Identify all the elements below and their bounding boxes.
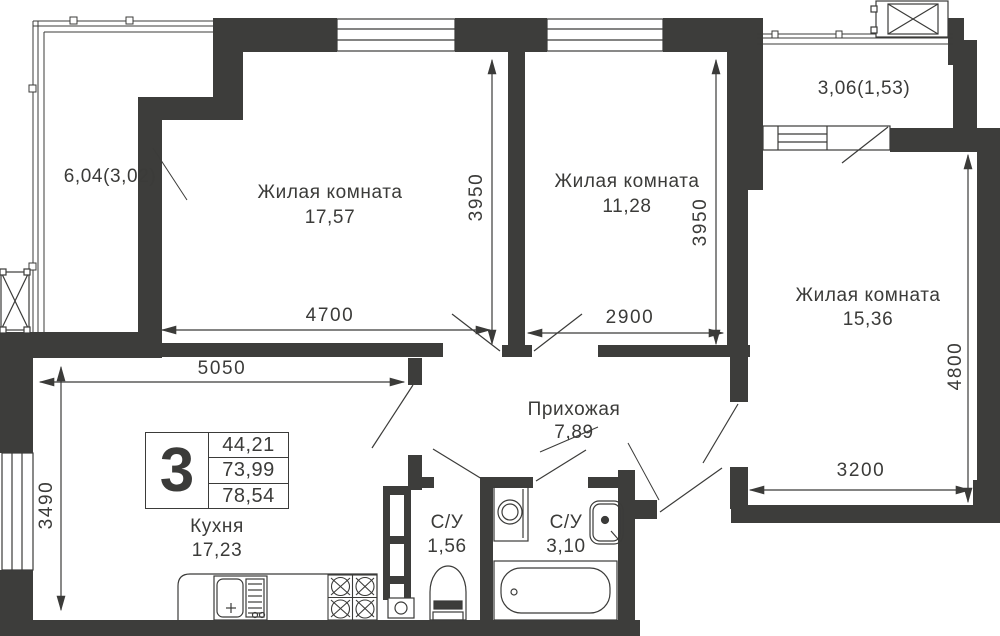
living-area-value: 44,21 <box>209 433 288 458</box>
wc-small-area: 1,56 <box>407 536 487 558</box>
total-area-value: 78,54 <box>209 484 288 508</box>
ac-basket-top-right <box>871 1 948 37</box>
toilet <box>430 566 466 620</box>
floor-plan: Жилая комната 17,57 Жилая комната 11,28 … <box>0 0 1000 636</box>
door-leaf-kitchen <box>372 385 413 448</box>
room3-area: 15,36 <box>818 309 918 331</box>
apartment-area-value: 73,99 <box>209 458 288 483</box>
bathtub <box>494 561 617 620</box>
dim-kitchen-height: 3490 <box>35 455 59 555</box>
kitchen-label: Кухня <box>157 516 277 538</box>
dim-room3-height: 4800 <box>944 316 968 416</box>
dim-room3-width: 3200 <box>811 460 911 482</box>
dim-room2-width: 2900 <box>580 307 680 329</box>
areas-column: 44,21 73,99 78,54 <box>209 433 288 508</box>
window-kitchen <box>2 453 33 570</box>
window-balcony-door-room3 <box>763 126 890 150</box>
stove <box>328 575 377 620</box>
dim-room2-height: 3950 <box>689 172 713 272</box>
kitchen-sink <box>214 576 267 620</box>
washing-machine <box>494 486 528 541</box>
room3-label: Жилая комната <box>768 285 968 307</box>
rooms-count-cell: 3 <box>146 433 209 508</box>
hallway-label: Прихожая <box>474 399 674 421</box>
wc-big-label: С/У <box>526 512 606 534</box>
door-leaf-wc-big <box>536 450 586 481</box>
apartment-info-box: 3 44,21 73,99 78,54 <box>145 432 289 509</box>
room1-area: 17,57 <box>280 207 380 229</box>
door-leaf-room1 <box>452 314 500 351</box>
dim-kitchen-width: 5050 <box>172 358 272 380</box>
door-leaf-entrance <box>660 468 722 512</box>
rooms-count: 3 <box>160 436 194 506</box>
dim-room1-height: 3950 <box>465 147 489 247</box>
kitchen-area: 17,23 <box>167 540 267 562</box>
hallway-area: 7,89 <box>524 422 624 444</box>
door-leaf-room3 <box>703 404 738 463</box>
wc-big-area: 3,10 <box>526 536 606 558</box>
balcony-left-label: 6,04(3,02) <box>30 166 190 188</box>
room2-area: 11,28 <box>577 196 677 218</box>
window-room2 <box>547 19 663 51</box>
ac-basket-left <box>0 269 30 333</box>
window-room1 <box>337 19 455 51</box>
door-leaf-wc-small <box>433 449 482 479</box>
dim-room1-width: 4700 <box>280 305 380 327</box>
wc-small-label: С/У <box>407 512 487 534</box>
room1-label: Жилая комната <box>230 182 430 204</box>
balcony-right-label: 3,06(1,53) <box>784 78 944 100</box>
leader-hallway-entrance <box>628 443 659 500</box>
